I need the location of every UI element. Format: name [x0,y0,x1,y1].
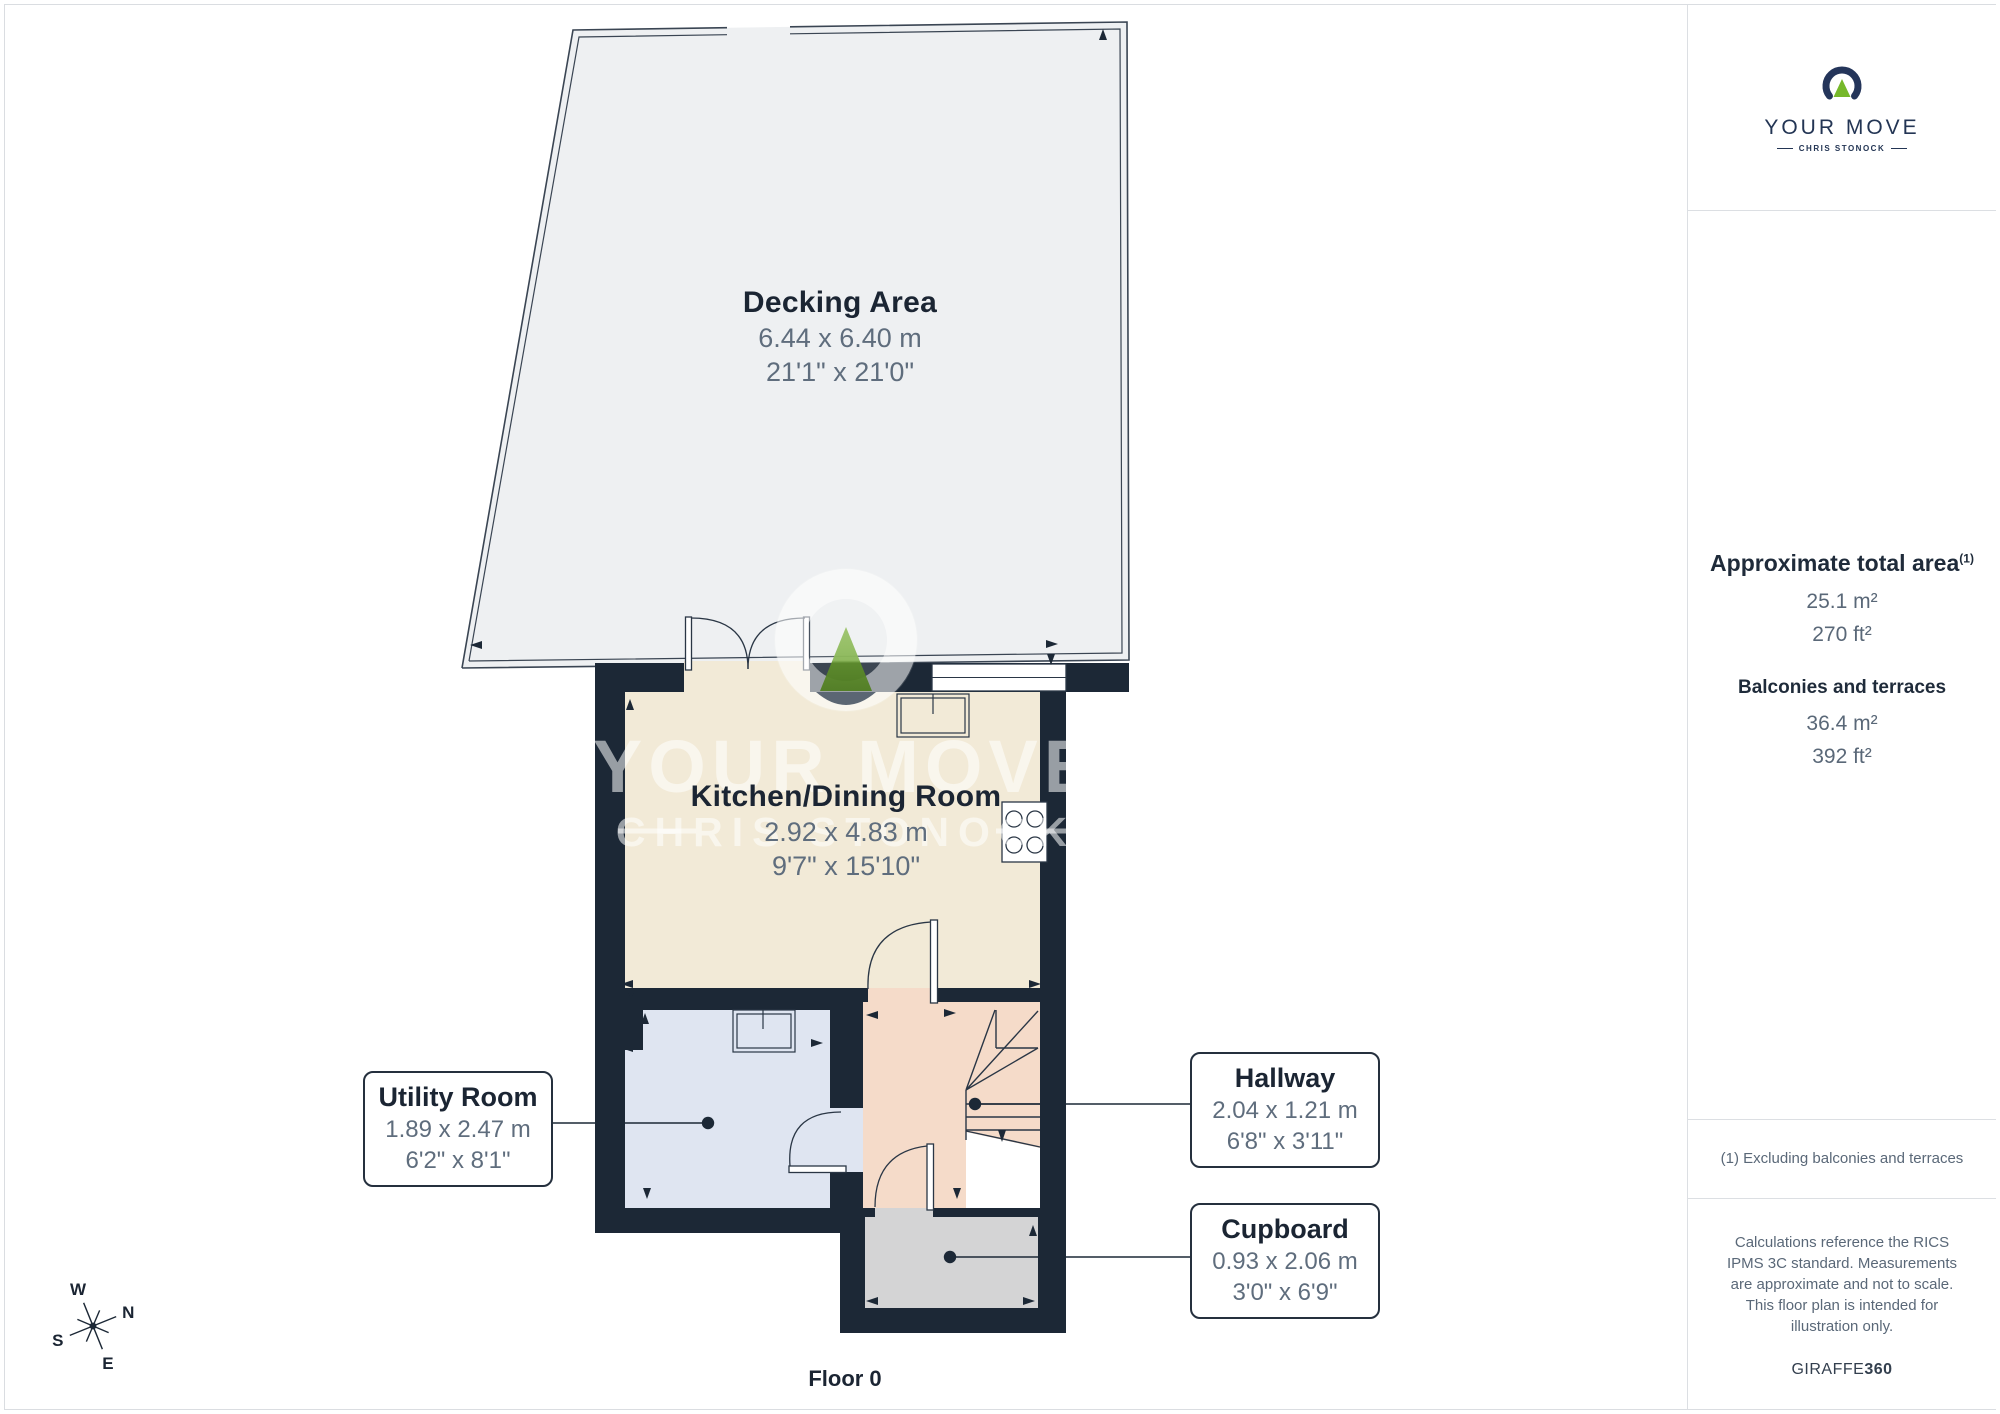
floorplan-drawing: YOUR MOVE CHRIS STONOCK [0,0,1687,1414]
room-dim-imperial: 3'0" x 6'9" [1196,1279,1374,1307]
kitchen-hall-opening [868,988,931,1004]
compass-s: S [52,1331,63,1350]
info-sidebar: YOUR MOVE CHRIS STONOCK Approximate tota… [1687,5,1996,1409]
hallway-label-box: Hallway 2.04 x 1.21 m 6'8" x 3'11" [1190,1052,1380,1168]
disclaimer-text: Calculations reference the RICS IPMS 3C … [1723,1232,1961,1337]
giraffe360-credit: GIRAFFE360 [1791,1361,1892,1379]
compass-n: N [122,1303,134,1322]
cupboard-label-box: Cupboard 0.93 x 2.06 m 3'0" x 6'9" [1190,1203,1380,1319]
room-dim-imperial: 9'7" x 15'10" [686,851,1006,882]
floorplan-page: YOUR MOVE CHRIS STONOCK Decking Area 6.4… [0,0,2000,1414]
total-area-footnote-ref: (1) [1959,551,1974,565]
balconies-title: Balconies and terraces [1688,677,1996,699]
utility-label-box: Utility Room 1.89 x 2.47 m 6'2" x 8'1" [363,1071,553,1187]
room-dim-metric: 2.04 x 1.21 m [1196,1097,1374,1125]
room-name: Decking Area [680,286,1000,320]
compass-e: E [102,1354,113,1373]
kitchen-window [932,664,1066,691]
utility-sink-unit [733,1010,795,1052]
total-area-metric: 25.1 m² [1688,590,1996,614]
room-name: Cupboard [1196,1214,1374,1245]
footnote-section: (1) Excluding balconies and terraces [1688,1119,1996,1199]
total-area-imperial: 270 ft² [1688,623,1996,647]
kitchen-label: Kitchen/Dining Room 2.92 x 4.83 m 9'7" x… [686,780,1006,882]
logo-dash-left [1777,148,1793,149]
room-dim-imperial: 21'1" x 21'0" [680,357,1000,388]
room-name: Utility Room [369,1082,547,1113]
logo-title: YOUR MOVE [1764,116,1919,140]
decking-label: Decking Area 6.44 x 6.40 m 21'1" x 21'0" [680,286,1000,388]
compass-rose-icon: N E S W [35,1268,151,1384]
your-move-logo-icon [1819,63,1865,109]
floor-label: Floor 0 [760,1366,930,1392]
utility-wall-notch [625,1010,643,1050]
logo-subtitle-row: CHRIS STONOCK [1777,144,1907,153]
compass-w: W [70,1280,87,1299]
total-area-title: Approximate total area(1) [1688,550,1996,577]
room-name: Hallway [1196,1063,1374,1094]
room-dim-imperial: 6'8" x 3'11" [1196,1128,1374,1156]
room-dim-metric: 0.93 x 2.06 m [1196,1248,1374,1276]
balconies-imperial: 392 ft² [1688,745,1996,769]
room-dim-metric: 2.92 x 4.83 m [686,817,1006,848]
cupboard-opening [875,1208,933,1218]
disclaimer-section: Calculations reference the RICS IPMS 3C … [1688,1198,1996,1409]
room-dim-imperial: 6'2" x 8'1" [369,1147,547,1175]
utility-floor [625,1010,830,1208]
balconies-metric: 36.4 m² [1688,712,1996,736]
logo-dash-right [1891,148,1907,149]
logo-subtitle: CHRIS STONOCK [1799,144,1885,153]
room-dim-metric: 1.89 x 2.47 m [369,1116,547,1144]
room-dim-metric: 6.44 x 6.40 m [680,323,1000,354]
footnote-text: (1) Excluding balconies and terraces [1721,1150,1964,1167]
agency-logo: YOUR MOVE CHRIS STONOCK [1688,5,1996,211]
room-name: Kitchen/Dining Room [686,780,1006,814]
utility-hall-opening [830,1108,863,1172]
area-summary-section: Approximate total area(1) 25.1 m² 270 ft… [1688,210,1996,1120]
